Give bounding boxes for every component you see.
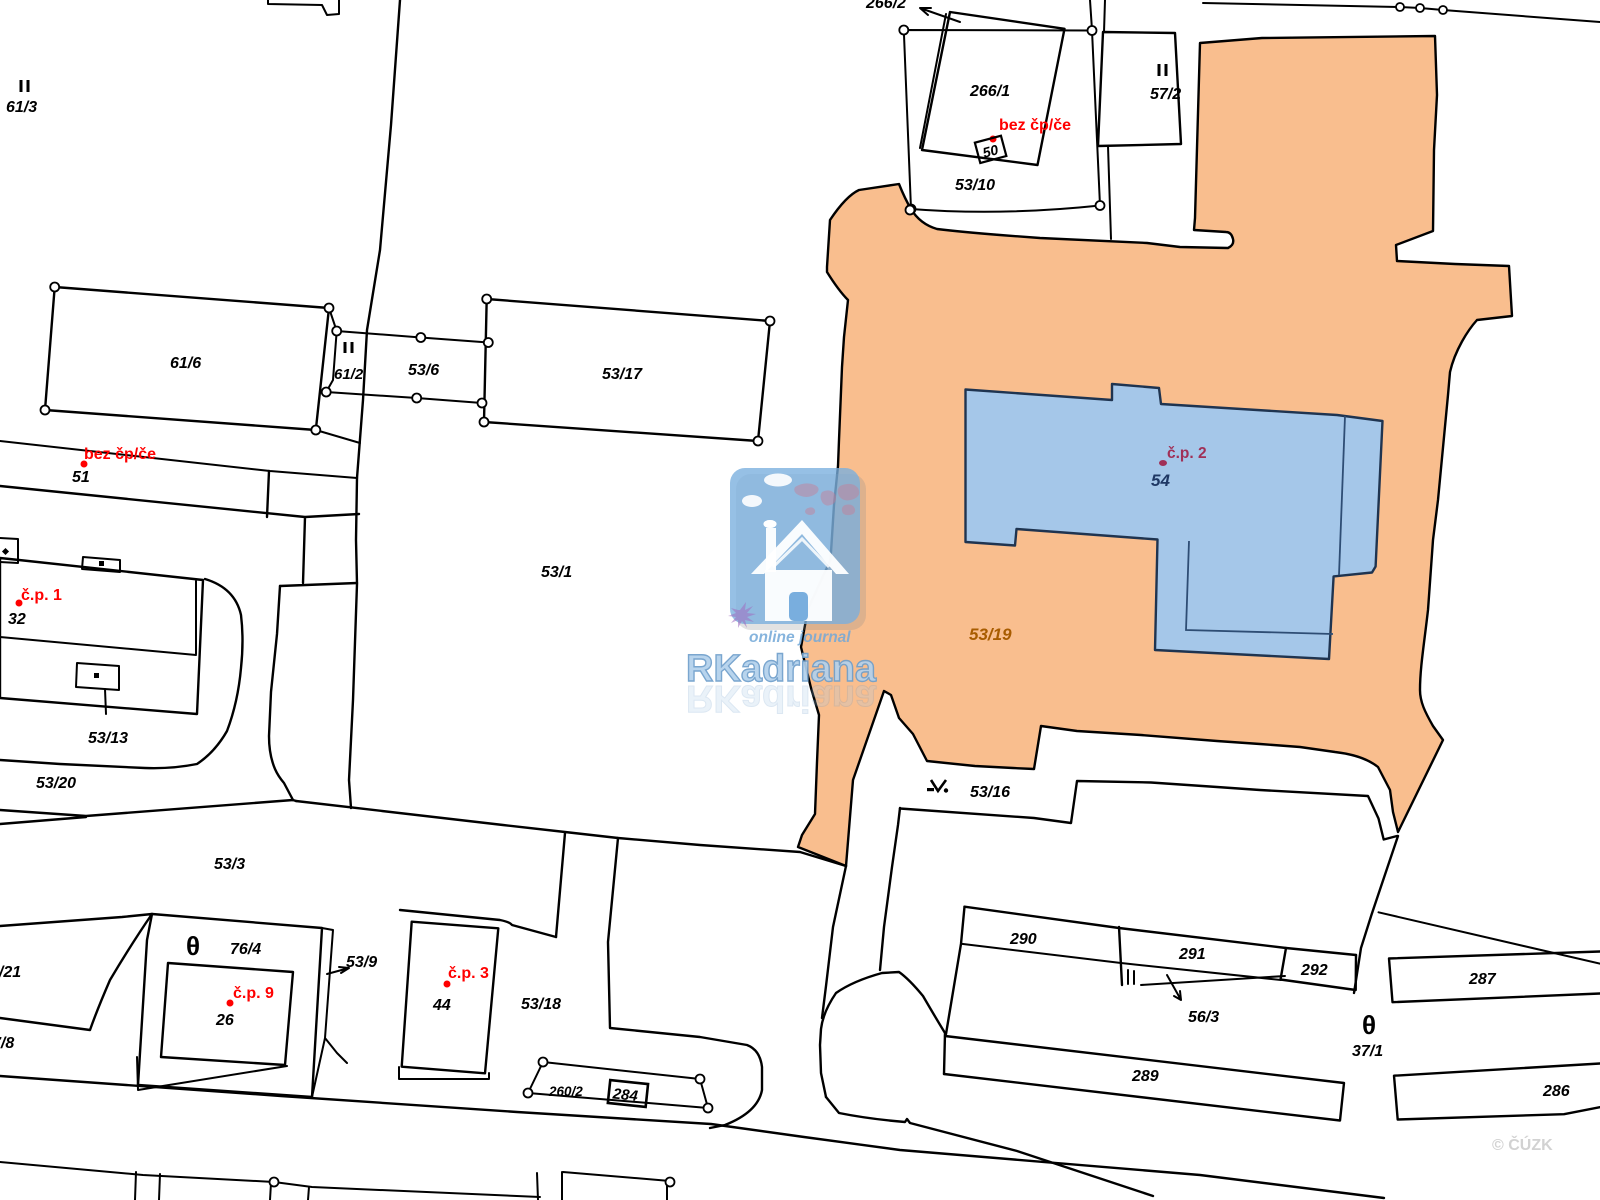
svg-text:bez čp/če: bez čp/če — [84, 446, 156, 463]
svg-text:61/3: 61/3 — [6, 99, 37, 116]
svg-text:53/9: 53/9 — [346, 954, 377, 971]
svg-text:292: 292 — [1300, 962, 1328, 979]
svg-text:266/2: 266/2 — [865, 0, 906, 12]
svg-text:32: 32 — [8, 611, 26, 628]
svg-text:260/2: 260/2 — [548, 1084, 583, 1099]
svg-text:44: 44 — [432, 997, 451, 1014]
svg-text:© ČÚZK: © ČÚZK — [1492, 1135, 1553, 1154]
svg-text:RKadriana: RKadriana — [686, 677, 877, 719]
svg-text:61/6: 61/6 — [170, 355, 201, 372]
svg-text:bez čp/če: bez čp/če — [999, 117, 1071, 134]
svg-text:č.p. 9: č.p. 9 — [233, 985, 274, 1002]
svg-text:53/17: 53/17 — [602, 366, 643, 383]
svg-text:289: 289 — [1131, 1068, 1159, 1085]
svg-text:7/8: 7/8 — [0, 1035, 14, 1052]
svg-text:266/1: 266/1 — [969, 83, 1010, 100]
svg-text:284: 284 — [611, 1085, 639, 1105]
svg-text:53/6: 53/6 — [408, 362, 439, 379]
svg-text:č.p. 1: č.p. 1 — [21, 587, 62, 604]
svg-text:57/2: 57/2 — [1150, 86, 1181, 103]
svg-text:53/10: 53/10 — [955, 177, 995, 194]
svg-text:53/18: 53/18 — [521, 996, 561, 1013]
svg-text:286: 286 — [1542, 1083, 1570, 1100]
svg-text:76/4: 76/4 — [230, 941, 261, 958]
svg-text:53/3: 53/3 — [214, 856, 245, 873]
svg-text:26: 26 — [215, 1012, 234, 1029]
svg-text:č.p. 3: č.p. 3 — [448, 965, 489, 982]
svg-text:53/19: 53/19 — [969, 625, 1012, 644]
svg-text:online journal: online journal — [749, 629, 851, 646]
svg-text:290: 290 — [1009, 931, 1037, 948]
svg-text:54: 54 — [1151, 471, 1170, 490]
svg-text:7/21: 7/21 — [0, 964, 21, 981]
svg-text:53/1: 53/1 — [541, 564, 572, 581]
svg-text:287: 287 — [1468, 971, 1497, 988]
svg-text:č.p. 2: č.p. 2 — [1167, 445, 1207, 462]
svg-text:53/13: 53/13 — [88, 730, 128, 747]
svg-text:53/20: 53/20 — [36, 775, 76, 792]
svg-text:61/2: 61/2 — [334, 366, 364, 383]
svg-text:53/16: 53/16 — [970, 784, 1010, 801]
svg-text:56/3: 56/3 — [1188, 1009, 1219, 1026]
svg-text:291: 291 — [1178, 946, 1206, 963]
svg-text:θ: θ — [1362, 1010, 1376, 1040]
svg-text:37/1: 37/1 — [1352, 1043, 1383, 1060]
svg-text:θ: θ — [186, 931, 200, 961]
svg-text:51: 51 — [72, 469, 90, 486]
